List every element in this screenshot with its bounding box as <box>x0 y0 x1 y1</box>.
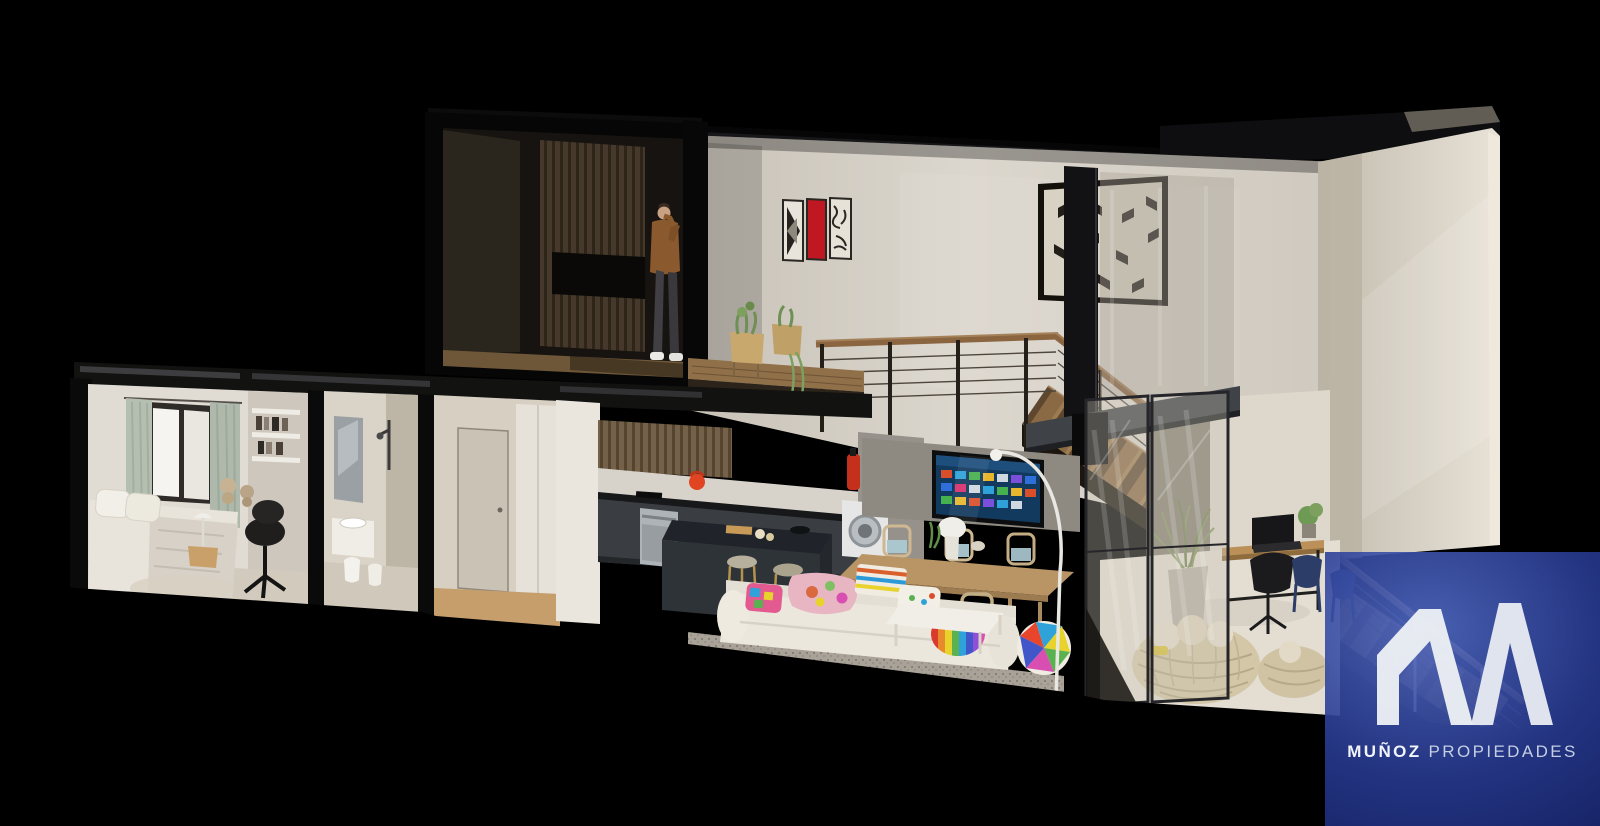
brand-logo-m-icon <box>1373 602 1553 726</box>
end-wall <box>1318 128 1500 560</box>
partition-wall-2 <box>418 394 434 626</box>
brand-name-secondary: PROPIEDADES <box>1429 742 1578 761</box>
brand-overlay: MUÑOZPROPIEDADES <box>1325 552 1600 826</box>
upper-dark-bedroom <box>425 112 706 388</box>
red-kettle <box>689 474 705 490</box>
brand-name: MUÑOZPROPIEDADES <box>1347 742 1578 762</box>
render-stage: MUÑOZPROPIEDADES <box>0 0 1600 826</box>
bathroom <box>324 391 418 624</box>
kids-bedroom <box>88 384 308 614</box>
multicolor-pouf <box>1017 621 1071 675</box>
brand-name-primary: MUÑOZ <box>1347 742 1421 761</box>
artwork-triptych <box>783 198 851 261</box>
glass-panes <box>1086 392 1228 706</box>
partition-wall-1 <box>308 390 324 620</box>
hallway <box>434 395 560 630</box>
structural-column-dark <box>683 120 708 390</box>
